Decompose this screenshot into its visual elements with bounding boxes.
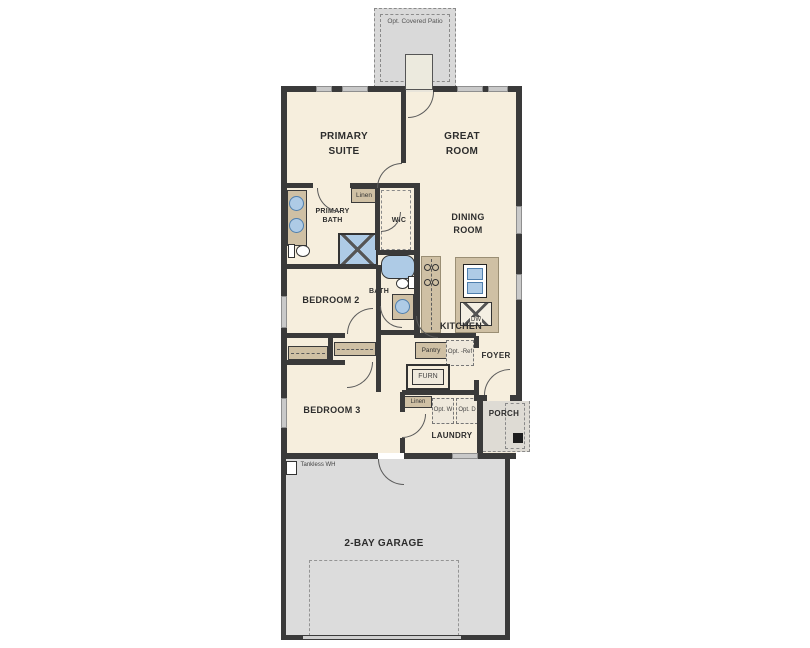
great-room-label: GREAT ROOM — [432, 129, 492, 159]
wall-porch-top-right — [510, 395, 522, 401]
porch-label: PORCH — [482, 409, 526, 419]
linen1-box: Linen — [351, 188, 377, 203]
closet-shelf-bedroom3 — [334, 342, 376, 356]
wall-bath-top-a — [283, 183, 313, 188]
wall-closet-bed3 — [283, 360, 345, 365]
garage-door-opening — [303, 636, 461, 639]
sink-icon — [289, 196, 304, 211]
garage-apron-dashed — [309, 560, 459, 636]
wall-wic-bath2 — [377, 250, 417, 255]
wall-garage-right — [505, 459, 510, 640]
bedroom2-label: BEDROOM 2 — [286, 295, 376, 306]
floor-plan: Opt. Covered Patio 2-BAY GARAGE PORCH PR… — [0, 0, 810, 648]
window — [488, 86, 508, 92]
porch-post — [513, 433, 523, 443]
tankless-label: Tankless WH — [299, 462, 337, 470]
wall-hall-right — [376, 335, 381, 392]
wall-linen-wic — [375, 183, 380, 250]
bedroom3-label: BEDROOM 3 — [287, 405, 377, 416]
wall-right — [516, 86, 522, 401]
window — [281, 398, 287, 428]
window — [452, 453, 478, 459]
linen2-box: Linen — [404, 396, 432, 408]
wall-laundry-porch — [477, 395, 483, 459]
patio-label: Opt. Covered Patio — [383, 18, 447, 26]
wall-bottom-left — [281, 453, 378, 459]
opt-washer-box: Opt. W — [432, 398, 454, 424]
toilet-icon — [288, 244, 295, 258]
range-burner-icon — [424, 264, 431, 271]
closet-shelf-bedroom2 — [288, 346, 328, 360]
range-burner-icon — [432, 264, 439, 271]
wall-suite-greatroom — [401, 92, 406, 163]
garage-label: 2-BAY GARAGE — [344, 536, 424, 551]
shower-icon — [338, 233, 378, 266]
island-sink-basin — [467, 268, 483, 280]
dining-room-label: DINING ROOM — [441, 211, 495, 236]
wall-bed2-bath2 — [376, 265, 381, 335]
window — [457, 86, 483, 92]
toilet-icon — [296, 245, 310, 257]
wall-laundry-left-b — [400, 438, 405, 453]
window — [316, 86, 332, 92]
wall-wic-dining — [414, 183, 420, 335]
window — [342, 86, 368, 92]
opt-dryer-box: Opt. D — [456, 398, 478, 424]
pantry-box: Pantry — [415, 342, 447, 359]
wall-bath-bed2 — [283, 264, 378, 269]
wall-kitchen-foyer — [414, 333, 476, 338]
primary-suite-label: PRIMARY SUITE — [304, 129, 384, 159]
island-sink-basin — [467, 282, 483, 294]
opt-ref-box: Opt. -Ref — [446, 340, 474, 366]
patio-door-panel — [405, 54, 433, 90]
range-burner-icon — [424, 279, 431, 286]
range-burner-icon — [432, 279, 439, 286]
window — [516, 206, 522, 234]
wall-foyer-left-b — [474, 380, 479, 401]
wall-foyer-left-a — [474, 336, 479, 348]
wall-garage-left — [281, 459, 286, 640]
window — [281, 296, 287, 328]
tankless-wh-icon — [286, 461, 297, 475]
wall-laundry-top — [402, 390, 478, 395]
window — [516, 274, 522, 300]
wall-bed2-closet — [283, 333, 345, 338]
sink-icon — [289, 218, 304, 233]
wall-garage-top-right — [483, 453, 516, 459]
wall-laundry-left-a — [400, 392, 405, 412]
furn-box: FURN — [412, 369, 444, 385]
foyer-label: FOYER — [476, 351, 516, 361]
